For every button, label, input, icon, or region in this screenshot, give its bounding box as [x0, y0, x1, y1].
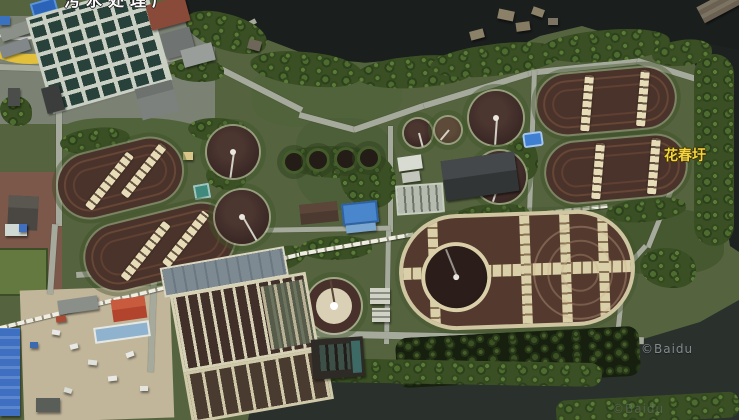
building-blue-small — [0, 16, 10, 25]
clarifier-hub — [239, 214, 245, 220]
ditch-walkway — [580, 75, 594, 132]
baidu-copyright-watermark: ©Baidu — [641, 342, 693, 356]
clarifier-arm — [229, 152, 235, 178]
equipment-tanks-grid — [397, 184, 443, 213]
clarifier-arm — [242, 217, 257, 241]
clarifier-arm — [494, 118, 498, 145]
ring-lanes-circle — [532, 224, 629, 321]
ditch-walkway — [162, 210, 210, 268]
tree-cluster — [640, 248, 696, 288]
oxidation-ditch-3 — [535, 65, 678, 137]
deep-clarifier-circle — [424, 245, 488, 309]
ditch-walkway — [636, 70, 650, 127]
warehouse-blue-left — [0, 328, 20, 416]
ditch-walkway — [647, 138, 661, 195]
filter-house-dark — [311, 336, 366, 380]
small-tank — [337, 150, 355, 168]
place-label-huachunwei: 花春圩 — [664, 145, 706, 165]
clarifier-arm — [418, 133, 424, 147]
satellite-map[interactable]: 污水处理厂 花春圩 ©Baidu ©Baidu — [0, 0, 739, 420]
baidu-copyright-watermark-faint: ©Baidu — [612, 402, 664, 416]
ditch-walkway — [85, 152, 134, 211]
digester-tank — [435, 117, 461, 143]
truck — [88, 360, 97, 366]
aeration-basin-complex — [160, 244, 336, 418]
building-brown-roof — [299, 201, 339, 225]
clarifier-arm — [440, 129, 450, 140]
clarifier-hub — [493, 115, 499, 121]
ruin-structure — [548, 18, 558, 25]
building-white — [401, 171, 420, 183]
building-blue-annex — [346, 222, 377, 233]
small-tank — [285, 153, 303, 171]
treatment-complex-stadium — [401, 212, 633, 328]
container-blue — [30, 342, 38, 348]
canopy-blue-small — [522, 131, 544, 149]
truck-blue — [19, 224, 27, 232]
small-tank — [360, 149, 378, 167]
truck — [140, 386, 148, 391]
clarifier-hub — [230, 149, 236, 155]
ditch-walkway — [121, 143, 167, 199]
truck — [108, 376, 117, 382]
small-tank — [309, 151, 327, 169]
building-white — [397, 154, 423, 171]
filter-teal-strip — [351, 340, 362, 373]
clarifier-tank — [207, 126, 259, 178]
walkway-vertical — [519, 216, 533, 324]
hut-teal-roof — [193, 183, 211, 201]
clarifier-arm — [445, 249, 458, 278]
place-label-top-clipped: 污水处理厂 — [64, 0, 174, 11]
shed-dark-yard — [36, 398, 60, 412]
clarifier-tank — [469, 91, 523, 145]
building-red-roof — [111, 296, 148, 323]
filter-cells — [319, 343, 351, 371]
lawn — [0, 250, 46, 294]
ditch-walkway — [591, 143, 605, 200]
clarifier-hub — [330, 302, 338, 310]
equipment-structure-white — [372, 308, 390, 322]
building-dark-small — [8, 88, 20, 106]
ruin-structure — [515, 21, 530, 32]
clarifier-tank — [215, 190, 269, 244]
digester-tank — [404, 119, 432, 147]
shed-tan — [183, 152, 193, 160]
equipment-structure-white — [370, 288, 390, 304]
